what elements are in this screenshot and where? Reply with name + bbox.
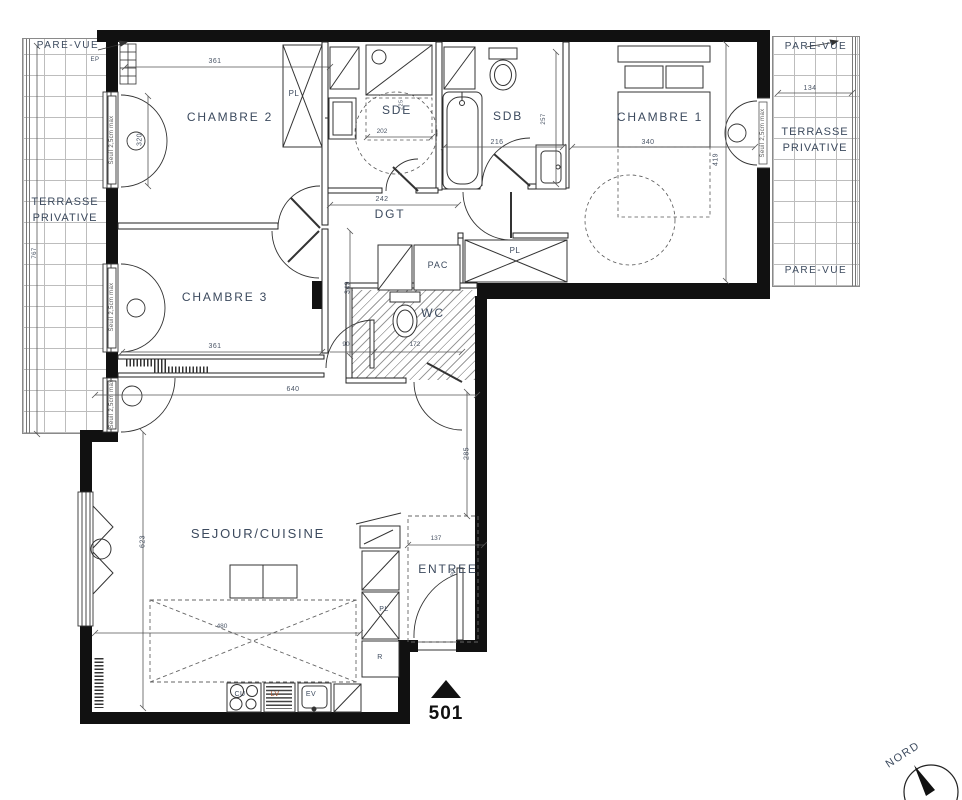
sde-label: SDE [367,104,427,116]
entree-label: ENTREE [413,563,483,575]
dim-wc-width: 172 [400,342,430,349]
unit-number: 501 [415,704,477,723]
dim-terrasse-left-depth: 767 [32,238,38,268]
dim-dgt-width: 242 [362,196,402,203]
kitchen-work-zone [150,600,356,682]
dgt-label: DGT [355,208,425,220]
pac-label: PAC [418,261,458,270]
dim-chambre3-width: 361 [185,343,245,350]
north-compass [904,765,958,800]
dim-entree-door: 90 [451,563,457,583]
dim-sdb-width: 216 [477,139,517,146]
entree-zone [408,516,478,642]
chambre1-label: CHAMBRE 1 [580,111,740,123]
dishwasher-label: LV [263,691,287,698]
terrasse-left-line1: TERRASSE [24,197,106,208]
dim-sdb-depth: 257 [541,109,547,129]
pl-entree-label: PL [372,606,396,613]
dim-chambre1-width: 340 [628,139,668,146]
chambre1-clearance [585,147,710,265]
dim-sde-depth: 225 [399,95,405,115]
terrasse-left-line2: PRIVATIVE [24,213,106,224]
seuil-note-sejour: Seuil 2,5cm max [109,374,115,434]
chambre2-label: CHAMBRE 2 [150,111,310,123]
floor-plan: CHAMBRE 2 CHAMBRE 1 CHAMBRE 3 SDE SDB DG… [0,0,962,800]
pare-vue-top-left: PARE-VUE [30,41,106,51]
pl-chambre1-label: PL [500,247,530,255]
dim-chambre1-depth: 419 [713,148,720,172]
dim-sejour-width: 640 [268,386,318,393]
duct-shaft [120,44,136,84]
downpipe-label: EP [88,57,102,63]
sdb-toilet-tank [489,48,517,59]
dim-wc-door: 90 [336,342,356,349]
pl-chambre2-label: PL [284,90,304,98]
dim-sejour-depth: 623 [140,530,147,554]
sejour-window-opening-marks [91,506,113,594]
pare-vue-bottom-right: PARE-VUE [776,266,856,276]
fridge-label: R [368,654,392,661]
dim-chambre2-window: 320 [137,128,144,152]
terrasse-right-line1: TERRASSE [772,127,858,138]
entree-threshold [418,642,456,650]
wc-label: WC [408,307,458,319]
cooktop-label: CU [230,691,250,698]
pare-vue-top-right: PARE-VUE [776,42,856,52]
terrasse-right-line2: PRIVATIVE [772,143,858,154]
sejour-label: SEJOUR/CUISINE [168,527,348,540]
dim-entree-width: 137 [416,536,456,543]
seuil-note-chambre1: Seuil 2,5cm max [760,103,766,163]
dim-dgt-depth: 349 [345,276,352,300]
bed-icon [618,46,710,147]
dim-chambre2-width: 361 [185,58,245,65]
dim-terrasse-right-width: 134 [790,85,830,92]
sdb-label: SDB [478,110,538,122]
kitchen-appliances [227,565,331,712]
seuil-note-chambre2: Seuil 2,5cm max [109,110,115,170]
dim-sejour-east: 285 [464,442,471,466]
chambre3-label: CHAMBRE 3 [145,291,305,303]
partitions [118,42,569,383]
sink-label: EV [297,691,325,698]
seuil-note-chambre3: Seuil 2,5cm max [109,277,115,337]
dim-sde-width: 202 [362,129,402,136]
dim-kitchen-width: 480 [202,624,242,631]
entrance-arrow [431,680,461,698]
